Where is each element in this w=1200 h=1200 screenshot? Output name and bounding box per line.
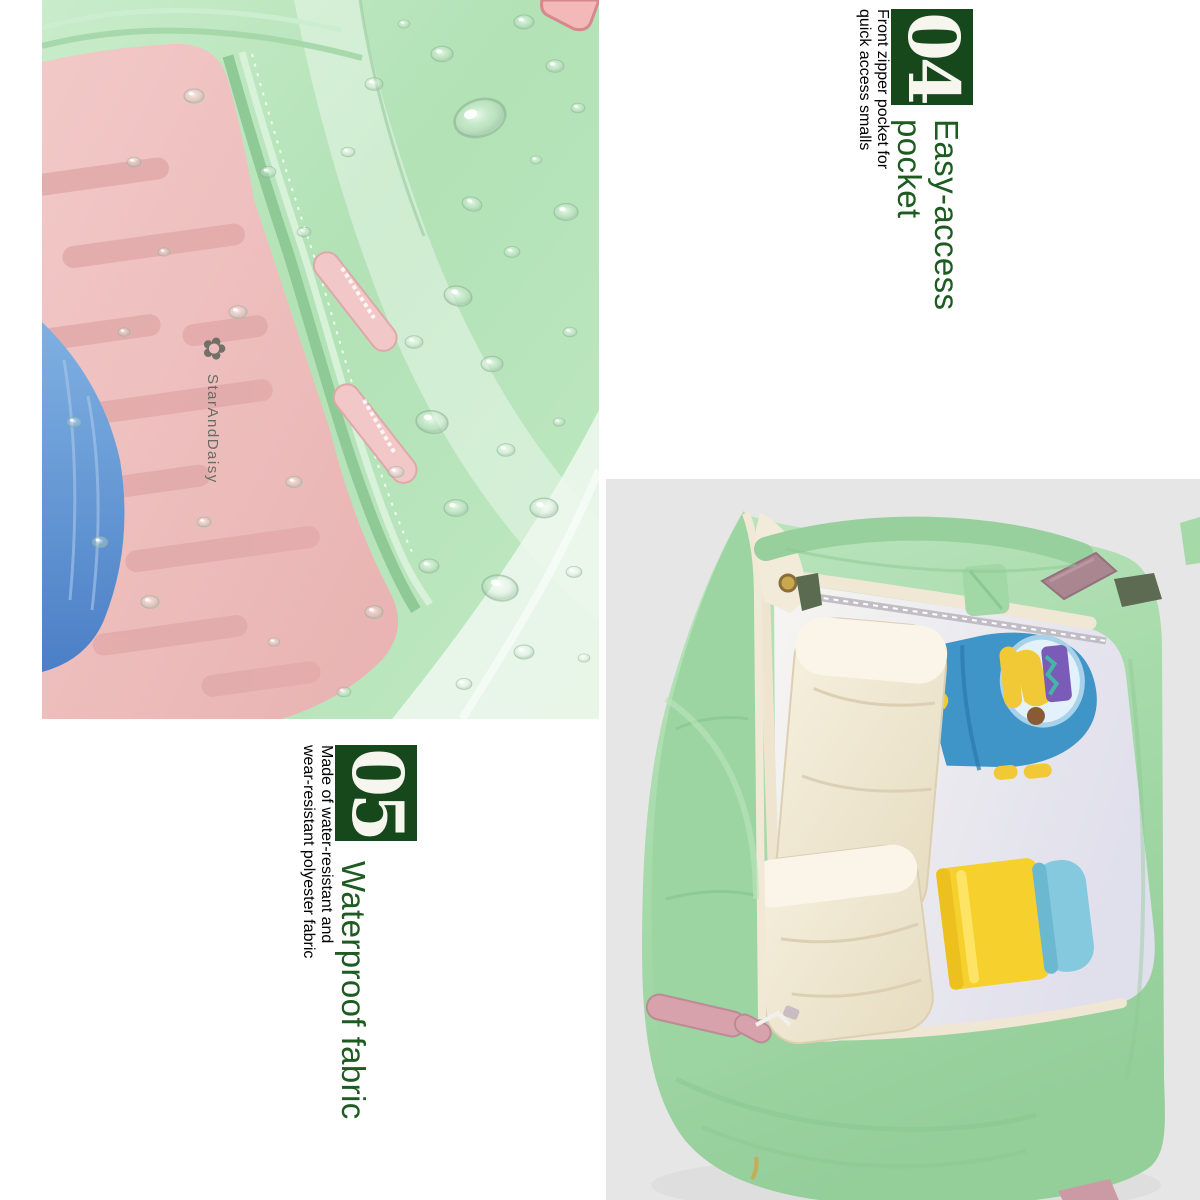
feature-04-title: Easy-access pocket: [891, 119, 965, 310]
brand-logo-text: StarAndDaisy: [204, 374, 221, 484]
feature-05-title: Waterproof fabric: [335, 861, 372, 1120]
daisy-icon: ✿: [197, 336, 230, 361]
photo-waterproof-closeup: ✿ StarAndDaisy: [42, 0, 599, 719]
feature-section-04: 04 Easy-access pocket Front zipper pocke…: [783, 9, 973, 354]
feature-04-badge: 04: [891, 9, 973, 105]
yellow-bottle: [935, 851, 1097, 990]
photo-open-backpack: [606, 479, 1200, 1200]
product-detail-graphic: ✿ StarAndDaisy: [0, 0, 1200, 1200]
feature-05-badge: 05: [335, 745, 417, 841]
feature-section-05: 05 Waterproof fabric Made of water-resis…: [227, 745, 417, 1177]
